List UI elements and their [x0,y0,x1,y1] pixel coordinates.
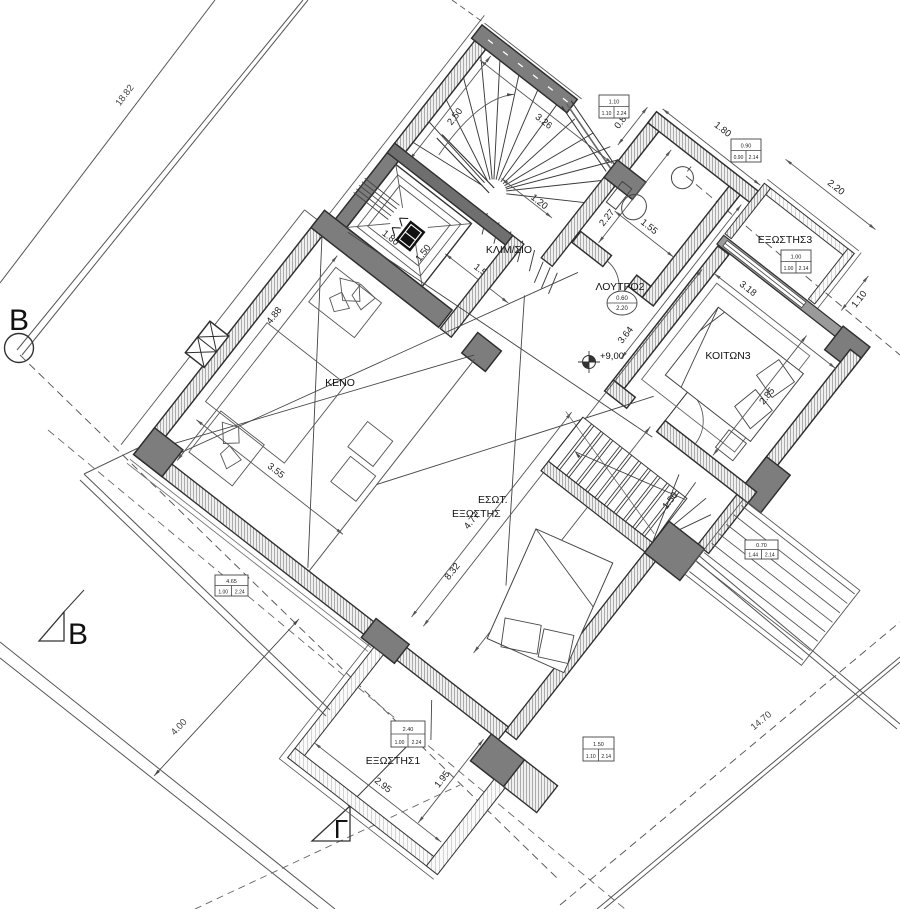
svg-text:1.00: 1.00 [784,266,794,272]
svg-text:ΕΞΩΣΤΗΣ3: ΕΞΩΣΤΗΣ3 [758,234,813,246]
svg-text:1.44: 1.44 [748,553,758,559]
svg-text:2.14: 2.14 [799,266,809,272]
svg-text:2.24: 2.24 [235,590,245,596]
svg-text:ΕΞΩΣΤΗΣ1: ΕΞΩΣΤΗΣ1 [366,755,421,767]
svg-text:1.00: 1.00 [395,740,405,746]
svg-text:1.10: 1.10 [602,111,612,117]
svg-text:B: B [68,618,88,651]
svg-text:2.14: 2.14 [601,754,611,760]
svg-text:Γ: Γ [334,814,348,844]
svg-text:ΕΞΩΣΤΗΣ: ΕΞΩΣΤΗΣ [452,508,501,520]
svg-text:0.90: 0.90 [734,155,744,161]
svg-text:1.50: 1.50 [593,742,604,748]
svg-text:1.10: 1.10 [586,754,596,760]
svg-text:2.14: 2.14 [765,553,775,559]
svg-text:ΕΣΩΤ.: ΕΣΩΤ. [478,494,508,506]
svg-text:ΚΕΝΟ: ΚΕΝΟ [325,377,355,389]
svg-text:+9,00: +9,00 [600,351,624,362]
svg-text:ΚΛΙΜ/ΣΙΟ: ΚΛΙΜ/ΣΙΟ [486,244,532,256]
svg-text:1.00: 1.00 [791,255,802,261]
svg-text:1.00: 1.00 [218,590,228,596]
svg-text:0.60: 0.60 [616,296,628,302]
svg-text:2.14: 2.14 [749,155,759,161]
svg-text:2.24: 2.24 [617,111,627,117]
svg-text:0.90: 0.90 [741,144,752,150]
svg-text:0.70: 0.70 [756,543,767,549]
svg-text:4.65: 4.65 [226,579,237,585]
svg-text:1.10: 1.10 [609,100,620,106]
svg-text:2.20: 2.20 [616,306,628,312]
svg-text:B: B [9,304,29,337]
svg-text:2.24: 2.24 [412,740,422,746]
svg-text:2.40: 2.40 [403,727,414,733]
svg-text:ΚΟΙΤΩΝ3: ΚΟΙΤΩΝ3 [705,350,750,362]
